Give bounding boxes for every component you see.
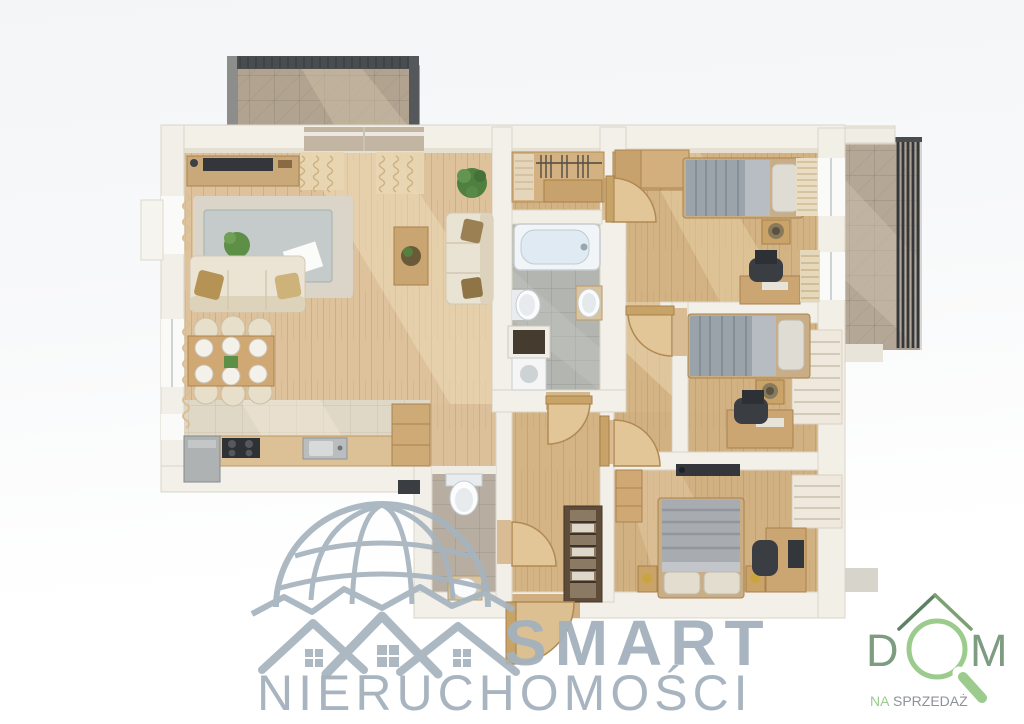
svg-text:NA: NA <box>870 693 890 709</box>
svg-text:NIERUCHOMOŚCI: NIERUCHOMOŚCI <box>257 664 753 721</box>
svg-text:D: D <box>866 625 899 676</box>
svg-text:M: M <box>970 625 1008 676</box>
svg-text:SPRZEDAŻ: SPRZEDAŻ <box>893 692 968 709</box>
